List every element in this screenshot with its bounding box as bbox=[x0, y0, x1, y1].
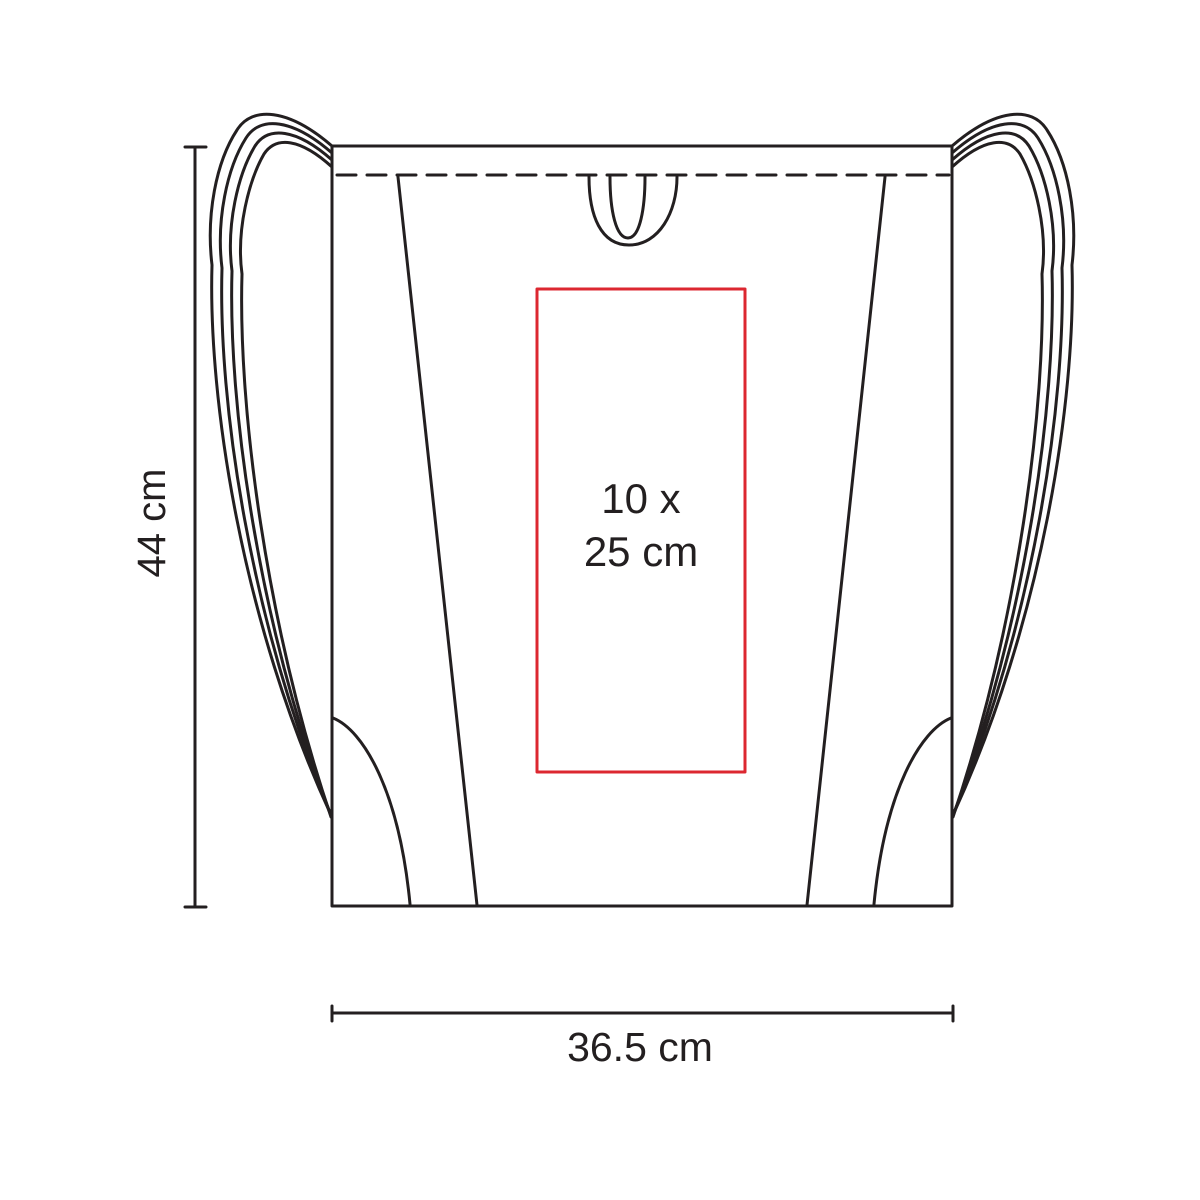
drawstring-cord bbox=[952, 133, 1054, 816]
width-dimension-line bbox=[332, 1006, 953, 1021]
height-dimension-label: 44 cm bbox=[127, 413, 177, 633]
drawstring-cord bbox=[952, 142, 1043, 817]
drawstring-right bbox=[952, 114, 1074, 817]
print-area-label-line1: 10 x bbox=[537, 472, 745, 525]
diagram-canvas: 44 cm 36.5 cm 10 x 25 cm bbox=[0, 0, 1200, 1200]
drawstring-cord bbox=[952, 124, 1064, 815]
print-area-label: 10 x 25 cm bbox=[537, 472, 745, 578]
width-dimension-label: 36.5 cm bbox=[440, 1024, 840, 1070]
drawstring-cord bbox=[220, 124, 332, 815]
bag-line-drawing bbox=[0, 0, 1200, 1200]
drawstring-left bbox=[210, 114, 332, 817]
drawstring-cord bbox=[230, 133, 332, 816]
drawstring-cord bbox=[210, 114, 332, 815]
drawstring-cord bbox=[241, 142, 332, 817]
height-dimension-line bbox=[185, 147, 206, 907]
print-area-label-line2: 25 cm bbox=[537, 525, 745, 578]
drawstring-cord bbox=[952, 114, 1074, 815]
